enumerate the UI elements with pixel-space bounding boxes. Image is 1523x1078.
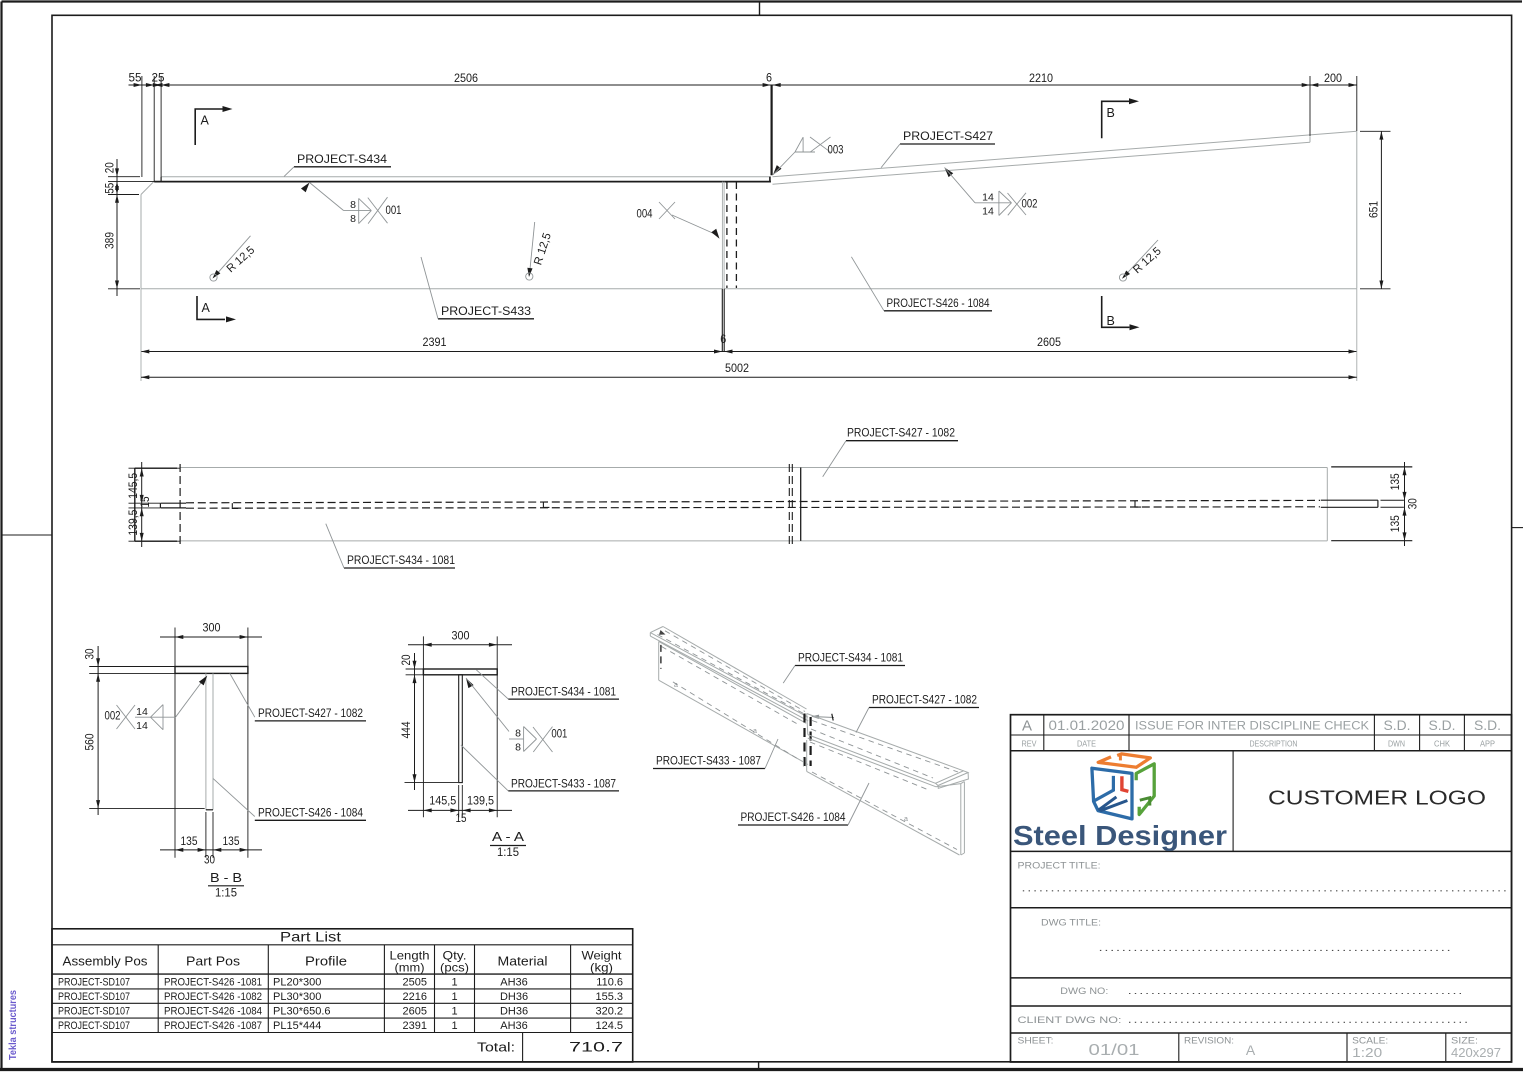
svg-text:PROJECT-S426 -1087: PROJECT-S426 -1087 (164, 1020, 262, 1032)
svg-text:300: 300 (452, 629, 470, 643)
svg-text:6: 6 (766, 71, 772, 85)
svg-text:PROJECT-SD107: PROJECT-SD107 (58, 991, 130, 1003)
svg-text:004: 004 (637, 209, 654, 221)
svg-text:2506: 2506 (454, 71, 478, 85)
svg-text:PL30*300: PL30*300 (273, 991, 321, 1003)
svg-text:2605: 2605 (403, 1006, 427, 1018)
svg-text:PROJECT-S434 - 1081: PROJECT-S434 - 1081 (347, 553, 455, 567)
svg-text:PROJECT-S434: PROJECT-S434 (297, 152, 387, 166)
svg-text:(mm): (mm) (395, 961, 425, 975)
svg-text:Assembly Pos: Assembly Pos (63, 955, 148, 969)
svg-text:(kg): (kg) (590, 961, 613, 975)
svg-text:a: a (753, 728, 757, 735)
svg-text:CUSTOMER LOGO: CUSTOMER LOGO (1268, 788, 1486, 810)
svg-text:S.D.: S.D. (1384, 717, 1411, 733)
svg-text:PROJECT-S434 - 1081: PROJECT-S434 - 1081 (798, 651, 903, 665)
svg-text:145,5: 145,5 (429, 794, 456, 808)
svg-text:PROJECT-S433 - 1087: PROJECT-S433 - 1087 (511, 776, 616, 790)
svg-text:PROJECT-SD107: PROJECT-SD107 (58, 1020, 130, 1032)
svg-text:001: 001 (386, 205, 402, 217)
svg-text:PL30*650.6: PL30*650.6 (273, 1006, 331, 1018)
svg-text:135: 135 (223, 834, 240, 848)
svg-text:155.3: 155.3 (595, 991, 623, 1003)
svg-text:003: 003 (828, 145, 844, 157)
svg-text:A: A (1022, 718, 1032, 735)
svg-text:14: 14 (982, 206, 994, 218)
svg-text:651: 651 (1367, 201, 1381, 218)
svg-text:25: 25 (152, 71, 165, 85)
svg-text:002: 002 (1022, 199, 1038, 211)
svg-text:REVISION:: REVISION: (1184, 1036, 1234, 1047)
svg-text:PROJECT-S426 - 1084: PROJECT-S426 - 1084 (741, 810, 846, 824)
svg-text:DWG TITLE:: DWG TITLE: (1041, 918, 1101, 929)
svg-text:710.7: 710.7 (569, 1040, 623, 1055)
svg-text:135: 135 (1390, 473, 1402, 490)
svg-text:PROJECT-S426 - 1084: PROJECT-S426 - 1084 (258, 806, 363, 820)
svg-text:1: 1 (451, 1020, 457, 1032)
svg-text:2210: 2210 (1029, 71, 1053, 85)
svg-text:Steel Designer: Steel Designer (1013, 820, 1227, 851)
svg-text:PL15*444: PL15*444 (273, 1020, 321, 1032)
svg-text:2391: 2391 (423, 335, 447, 349)
svg-text:PROJECT-S433 - 1087: PROJECT-S433 - 1087 (656, 754, 761, 768)
svg-text:1:20: 1:20 (1352, 1045, 1382, 1060)
svg-text:002: 002 (105, 711, 121, 723)
svg-text:420x297: 420x297 (1451, 1045, 1501, 1060)
svg-text:AH36: AH36 (500, 1020, 528, 1032)
svg-text:CHK: CHK (1434, 739, 1450, 749)
svg-text:320.2: 320.2 (595, 1006, 623, 1018)
svg-text:01/01: 01/01 (1089, 1042, 1140, 1059)
svg-text:389: 389 (103, 232, 117, 249)
svg-text:8: 8 (515, 742, 521, 754)
svg-text:APP: APP (1480, 739, 1495, 749)
svg-text:01.01.2020: 01.01.2020 (1049, 717, 1125, 733)
svg-text:Tekla structures: Tekla structures (8, 990, 19, 1060)
svg-text:2216: 2216 (403, 991, 427, 1003)
svg-text:001: 001 (551, 729, 567, 741)
svg-text:55: 55 (129, 71, 142, 85)
svg-text:139,5: 139,5 (467, 794, 494, 808)
svg-text:PROJECT-S427: PROJECT-S427 (903, 129, 993, 143)
svg-text:14: 14 (136, 720, 148, 732)
svg-text:560: 560 (83, 733, 97, 750)
svg-text:Part List: Part List (280, 929, 341, 945)
svg-text:(pcs): (pcs) (440, 961, 469, 975)
svg-text:8: 8 (515, 728, 521, 740)
svg-text:B: B (1107, 106, 1115, 120)
svg-text:ISSUE FOR INTER DISCIPLINE: ISSUE FOR INTER DISCIPLINE CHECK (1135, 721, 1369, 733)
svg-text:2391: 2391 (403, 1020, 427, 1032)
svg-text:DH36: DH36 (500, 1006, 528, 1018)
svg-text:30: 30 (204, 853, 215, 867)
svg-text:a: a (674, 682, 678, 689)
svg-text:15: 15 (456, 811, 467, 825)
svg-text:30: 30 (1408, 498, 1420, 509)
svg-text:1: 1 (451, 977, 457, 989)
svg-text:300: 300 (203, 621, 221, 635)
svg-text:PROJECT-S427 - 1082: PROJECT-S427 - 1082 (258, 706, 363, 720)
svg-text:DATE: DATE (1077, 739, 1096, 749)
svg-text:139,5: 139,5 (128, 510, 140, 536)
svg-text:20: 20 (399, 654, 413, 665)
svg-text:B: B (1107, 314, 1115, 328)
svg-text:PROJECT TITLE:: PROJECT TITLE: (1018, 861, 1101, 872)
svg-text:200: 200 (1324, 71, 1342, 85)
svg-text:DWN: DWN (1388, 739, 1405, 749)
svg-text:135: 135 (1390, 515, 1402, 532)
svg-text:PROJECT-S434 - 1081: PROJECT-S434 - 1081 (511, 685, 616, 699)
svg-text:Total:: Total: (477, 1040, 515, 1055)
svg-text:S.D.: S.D. (1474, 717, 1501, 733)
svg-text:1:15: 1:15 (497, 845, 519, 859)
svg-text:14: 14 (982, 192, 994, 204)
svg-text:B - B: B - B (210, 871, 242, 885)
svg-text:A: A (202, 301, 211, 315)
svg-text:15: 15 (140, 497, 152, 508)
svg-text:DH36: DH36 (500, 991, 528, 1003)
svg-text:6: 6 (720, 332, 726, 346)
svg-text:8: 8 (350, 213, 356, 225)
svg-text:135: 135 (181, 834, 198, 848)
svg-text:145,5: 145,5 (128, 473, 140, 499)
svg-text:DESCRIPTION: DESCRIPTION (1250, 739, 1298, 749)
svg-text:PL20*300: PL20*300 (273, 977, 321, 989)
svg-text:Profile: Profile (305, 955, 347, 969)
svg-text:DWG NO:: DWG NO: (1060, 986, 1108, 997)
svg-text:124.5: 124.5 (595, 1020, 623, 1032)
svg-text:a: a (904, 816, 908, 823)
svg-text:REV: REV (1022, 739, 1037, 749)
svg-text:55: 55 (103, 183, 117, 194)
svg-text:PROJECT-SD107: PROJECT-SD107 (58, 1006, 130, 1018)
svg-text:A: A (1246, 1042, 1256, 1058)
svg-text:20: 20 (103, 162, 117, 173)
svg-text:30: 30 (83, 648, 97, 659)
svg-text:PROJECT-SD107: PROJECT-SD107 (58, 977, 130, 989)
svg-text:110.6: 110.6 (596, 977, 623, 989)
svg-text:2605: 2605 (1037, 335, 1061, 349)
svg-text:PROJECT-S426 -1084: PROJECT-S426 -1084 (164, 1006, 262, 1018)
svg-text:1: 1 (451, 1006, 457, 1018)
svg-text:PROJECT-S426 -1082: PROJECT-S426 -1082 (164, 991, 262, 1003)
svg-text:1:15: 1:15 (215, 886, 237, 900)
svg-text:CLIENT DWG NO:: CLIENT DWG NO: (1018, 1015, 1122, 1026)
svg-text:444: 444 (399, 721, 413, 738)
svg-text:Part Pos: Part Pos (186, 955, 240, 969)
svg-text:SHEET:: SHEET: (1018, 1036, 1054, 1047)
svg-text:PROJECT-S433: PROJECT-S433 (441, 304, 531, 318)
svg-text:14: 14 (136, 706, 148, 718)
svg-text:PROJECT-S427 - 1082: PROJECT-S427 - 1082 (872, 693, 977, 707)
svg-text:AH36: AH36 (500, 977, 528, 989)
svg-text:A - A: A - A (492, 830, 525, 844)
svg-text:8: 8 (350, 199, 356, 211)
svg-text:5002: 5002 (725, 361, 749, 375)
svg-text:PROJECT-S426 -1081: PROJECT-S426 -1081 (164, 977, 262, 989)
svg-text:2505: 2505 (403, 977, 427, 989)
svg-text:1: 1 (451, 991, 457, 1003)
svg-text:PROJECT-S426 - 1084: PROJECT-S426 - 1084 (887, 296, 990, 310)
svg-text:Material: Material (498, 955, 548, 969)
svg-text:PROJECT-S427 - 1082: PROJECT-S427 - 1082 (847, 426, 955, 440)
svg-text:S.D.: S.D. (1429, 717, 1456, 733)
svg-text:A: A (201, 114, 210, 128)
